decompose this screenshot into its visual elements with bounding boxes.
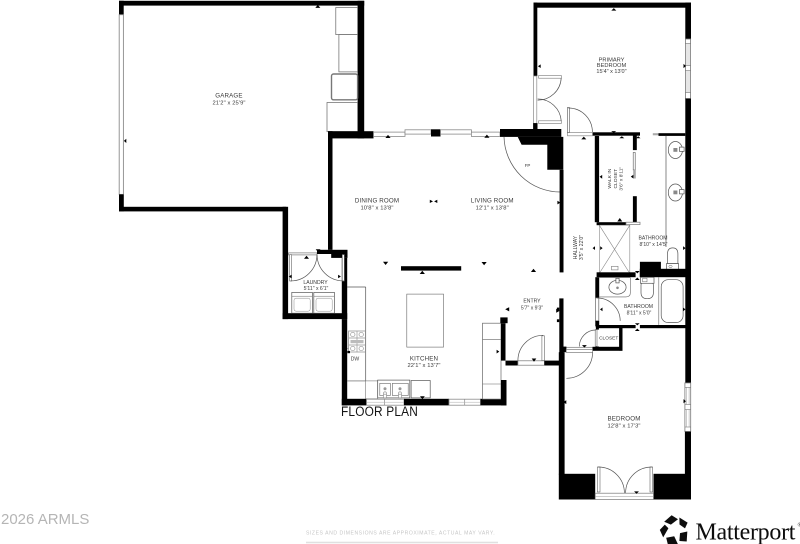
svg-text:BEDROOM: BEDROOM (607, 416, 640, 423)
svg-text:3'6" x 8'11": 3'6" x 8'11" (618, 167, 624, 191)
svg-text:BATHROOM: BATHROOM (624, 304, 653, 310)
svg-text:FP: FP (525, 163, 531, 168)
svg-text:DW: DW (351, 357, 360, 363)
svg-text:8'10" x 14'5": 8'10" x 14'5" (640, 242, 668, 248)
svg-text:DINING ROOM: DINING ROOM (355, 198, 399, 205)
svg-text:3'5" x 22'0": 3'5" x 22'0" (579, 235, 585, 260)
svg-text:12'1" x 13'8": 12'1" x 13'8" (476, 205, 509, 211)
svg-text:2026 ARMLS: 2026 ARMLS (1, 511, 89, 528)
svg-text:WALK IN: WALK IN (607, 168, 613, 188)
svg-text:SIZES AND DIMENSIONS ARE APPRO: SIZES AND DIMENSIONS ARE APPROXIMATE, AC… (306, 531, 495, 537)
svg-text:22'1" x 13'7": 22'1" x 13'7" (407, 363, 440, 369)
svg-text:GARAGE: GARAGE (215, 93, 242, 100)
svg-text:12'8" x 17'3": 12'8" x 17'3" (607, 423, 640, 429)
svg-text:KITCHEN: KITCHEN (410, 355, 438, 362)
svg-text:ENTRY: ENTRY (523, 298, 541, 304)
svg-text:21'2" x 25'9": 21'2" x 25'9" (212, 101, 245, 107)
svg-text:Matterport: Matterport (696, 520, 796, 544)
svg-text:LIVING ROOM: LIVING ROOM (471, 198, 514, 205)
svg-text:10'8" x 13'8": 10'8" x 13'8" (360, 205, 393, 211)
svg-text:CLOSET: CLOSET (599, 336, 618, 342)
svg-text:BATHROOM: BATHROOM (638, 236, 667, 242)
svg-text:5'7" x 9'3": 5'7" x 9'3" (521, 305, 543, 311)
svg-text:CLOSET: CLOSET (613, 169, 619, 189)
svg-text:8'11" x 5'0": 8'11" x 5'0" (627, 310, 652, 316)
svg-text:FLOOR PLAN: FLOOR PLAN (341, 403, 418, 419)
svg-text:5'11" x 6'1": 5'11" x 6'1" (304, 286, 329, 292)
svg-text:15'4" x 13'0": 15'4" x 13'0" (596, 69, 626, 75)
